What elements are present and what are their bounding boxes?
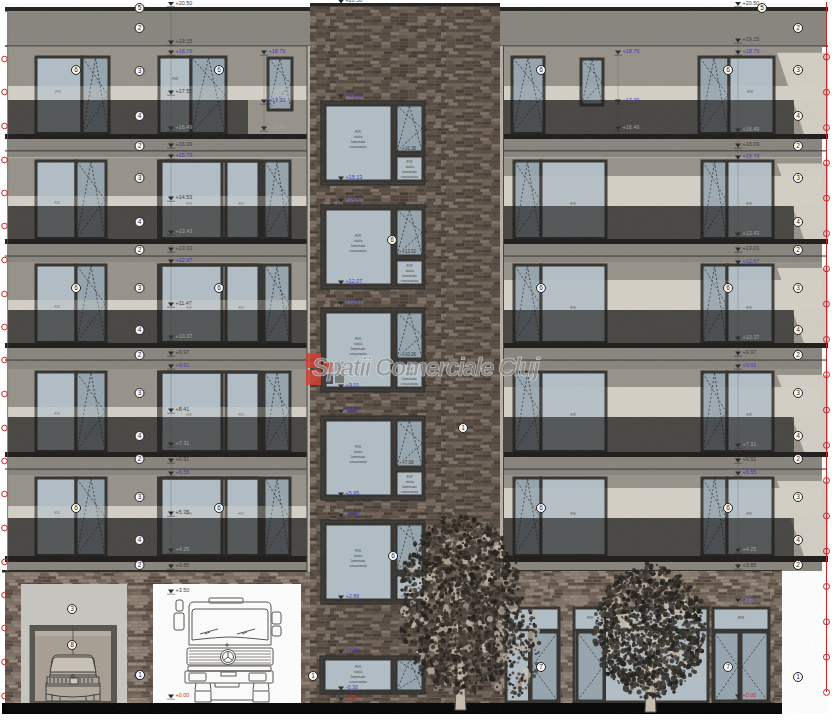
- svg-text:+20.50: +20.50: [346, 0, 363, 3]
